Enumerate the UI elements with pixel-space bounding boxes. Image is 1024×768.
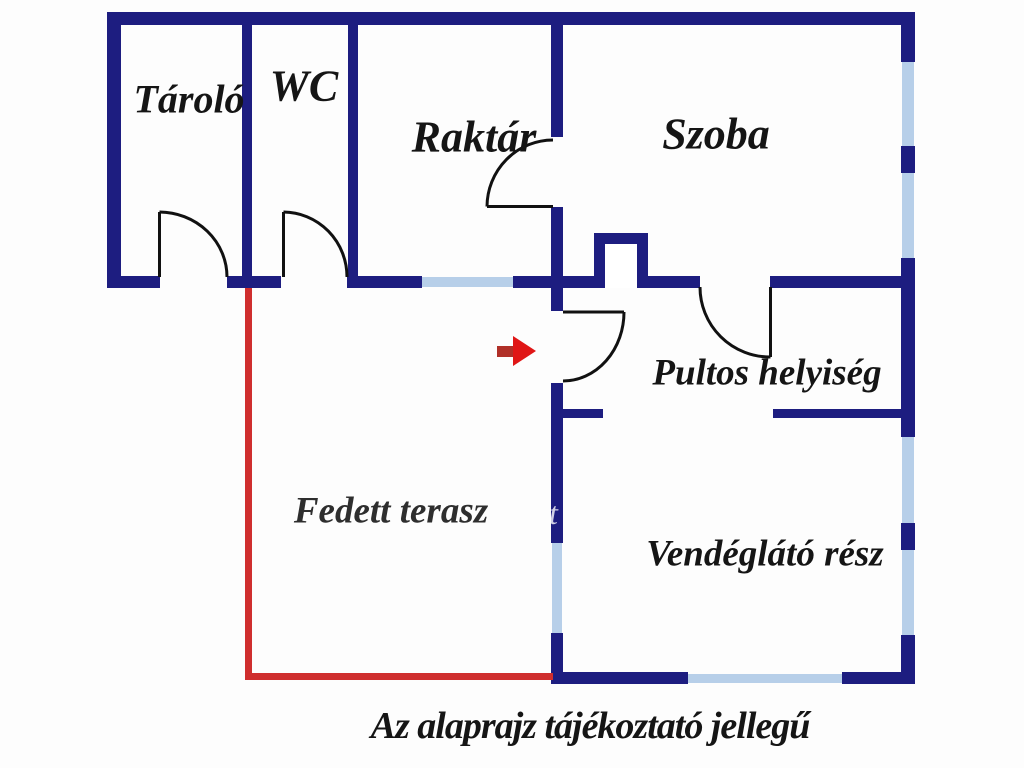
caption: Az alaprajz tájékoztató jellegű <box>371 704 810 748</box>
tarolo-door-arc <box>160 212 228 277</box>
entrance-arrow-icon <box>513 336 536 366</box>
pultos-door-arc <box>700 287 771 357</box>
floor-plan: Tároló WC Raktár Szoba Pultos helyiség F… <box>0 0 1024 768</box>
room-label-pultos: Pultos helyiség <box>652 352 881 395</box>
room-label-tarolo: Tároló <box>133 76 244 123</box>
room-label-vendeglato: Vendéglátó rész <box>646 533 883 576</box>
wc-door-arc <box>284 212 348 277</box>
entrance-arrow-stem <box>497 346 515 357</box>
room-label-szoba: Szoba <box>662 109 770 160</box>
room-label-raktar: Raktár <box>412 112 537 163</box>
room-label-fedett-terasz: Fedett terasz <box>294 490 488 533</box>
room-label-wc: WC <box>270 61 338 112</box>
watermark-letter: t <box>549 495 565 532</box>
terasz-door-arc <box>563 312 624 381</box>
